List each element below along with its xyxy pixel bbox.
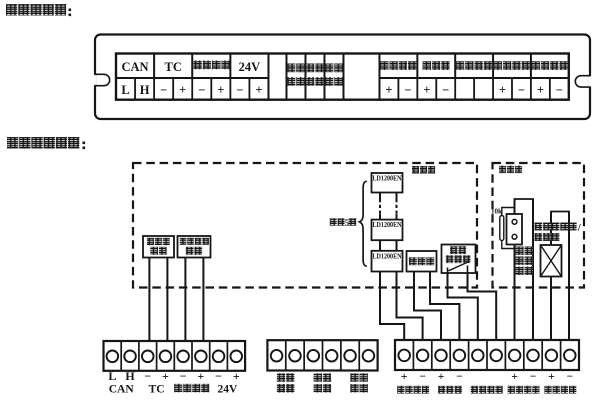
svg-text:LD1200EN: LD1200EN bbox=[373, 174, 402, 183]
svg-text:+: + bbox=[255, 83, 262, 97]
svg-text:H: H bbox=[125, 369, 135, 383]
svg-text:−: − bbox=[419, 371, 426, 383]
svg-text:+: + bbox=[179, 83, 186, 97]
svg-text:+: + bbox=[385, 83, 392, 97]
svg-text:−: − bbox=[456, 371, 463, 383]
svg-text:+: + bbox=[217, 83, 224, 97]
svg-text:−: − bbox=[567, 371, 574, 383]
svg-text:+: + bbox=[423, 83, 430, 97]
svg-text:+: + bbox=[511, 371, 518, 383]
svg-text:+: + bbox=[438, 371, 445, 383]
svg-text:−: − bbox=[518, 83, 525, 97]
svg-text:−: − bbox=[556, 83, 563, 97]
svg-text:+: + bbox=[401, 371, 408, 383]
svg-text:+: + bbox=[197, 369, 204, 383]
svg-text:−: − bbox=[144, 369, 151, 383]
svg-text:+: + bbox=[162, 369, 169, 383]
svg-text:+: + bbox=[548, 371, 555, 383]
svg-text:TC: TC bbox=[164, 60, 181, 74]
svg-text:H: H bbox=[140, 83, 150, 97]
svg-text:24V: 24V bbox=[239, 60, 261, 74]
svg-text:−: − bbox=[180, 369, 187, 383]
svg-text:24V: 24V bbox=[217, 384, 238, 396]
svg-text:LD1200EN: LD1200EN bbox=[373, 251, 402, 260]
svg-text:+: + bbox=[499, 83, 506, 97]
svg-text:−: − bbox=[215, 369, 222, 383]
svg-text:L: L bbox=[121, 83, 129, 97]
svg-text:L: L bbox=[108, 369, 116, 383]
svg-text:−: − bbox=[442, 83, 449, 97]
svg-text:CAN: CAN bbox=[122, 60, 149, 74]
svg-text:/: / bbox=[577, 223, 582, 234]
svg-text:10k: 10k bbox=[491, 208, 502, 216]
svg-text:−: − bbox=[236, 83, 243, 97]
svg-text:−: − bbox=[530, 371, 537, 383]
svg-text:+: + bbox=[233, 369, 240, 383]
svg-text:+: + bbox=[537, 83, 544, 97]
svg-text:−: − bbox=[160, 83, 167, 97]
svg-text:LD1200EN: LD1200EN bbox=[373, 220, 402, 229]
svg-text:CAN: CAN bbox=[109, 384, 135, 396]
svg-text:−: − bbox=[198, 83, 205, 97]
svg-text:TC: TC bbox=[149, 384, 165, 396]
svg-text:−: − bbox=[404, 83, 411, 97]
